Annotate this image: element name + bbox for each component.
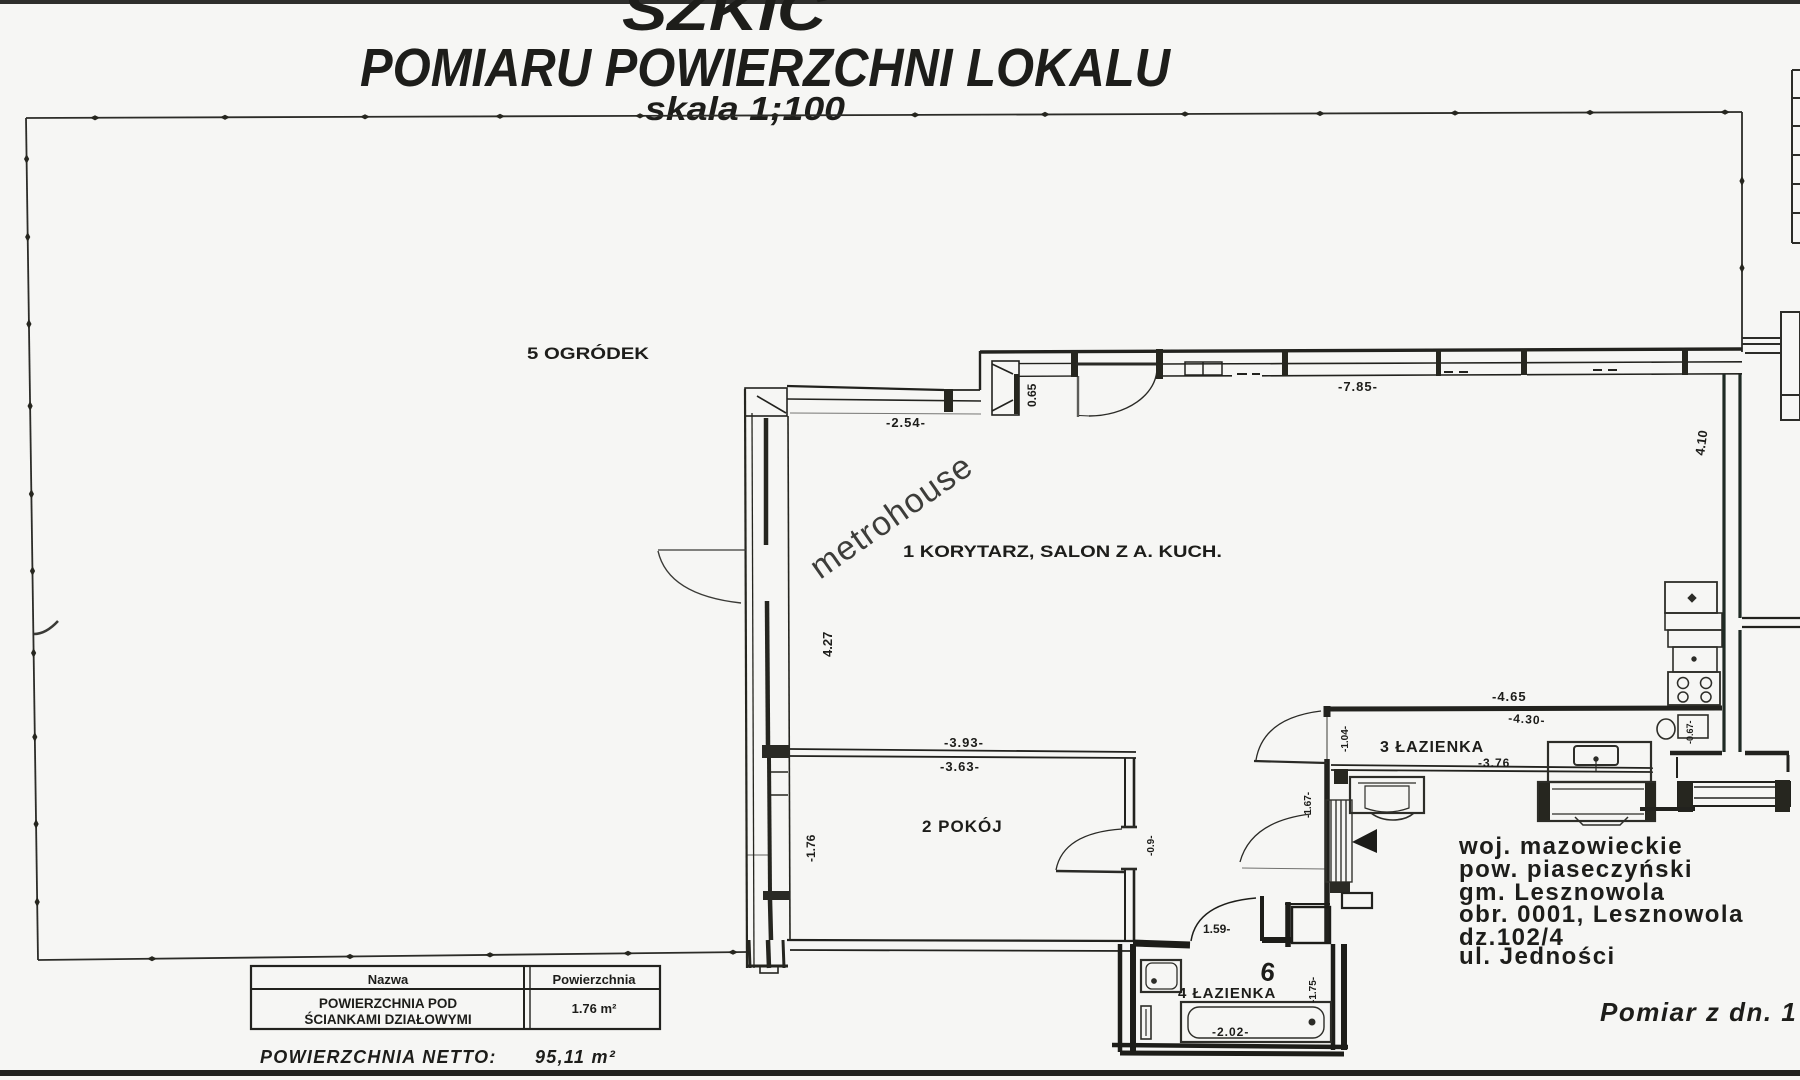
svg-text:-4.30-: -4.30- [1508, 711, 1546, 728]
svg-text:1.59-: 1.59- [1203, 922, 1230, 936]
svg-text:5 OGRÓDEK: 5 OGRÓDEK [527, 344, 650, 363]
svg-text:Pomiar z dn. 1: Pomiar z dn. 1 [1600, 997, 1797, 1027]
svg-text:-4.65: -4.65 [1492, 689, 1527, 704]
svg-text:SZKIC: SZKIC [622, 0, 827, 43]
svg-text:-0.67-: -0.67- [1685, 720, 1695, 744]
svg-text:skala 1;100: skala 1;100 [645, 90, 846, 127]
svg-text:4.27: 4.27 [820, 632, 835, 657]
svg-text:POWIERZCHNIA POD: POWIERZCHNIA POD [319, 996, 458, 1011]
svg-text:-3.93-: -3.93- [944, 735, 984, 750]
svg-text:-1.04-: -1.04- [1340, 726, 1351, 752]
svg-text:-2.54-: -2.54- [886, 415, 926, 430]
svg-text:3 ŁAZIENKA: 3 ŁAZIENKA [1380, 739, 1484, 756]
svg-text:-0.9-: -0.9- [1146, 835, 1157, 856]
svg-text:4 ŁAZIENKA: 4 ŁAZIENKA [1178, 985, 1276, 1002]
svg-text:0.65: 0.65 [1025, 383, 1039, 407]
svg-text:ul. Jedności: ul. Jedności [1459, 943, 1616, 970]
svg-text:-1.76: -1.76 [804, 834, 818, 862]
svg-text:2 POKÓJ: 2 POKÓJ [922, 817, 1003, 836]
svg-text:-3.63-: -3.63- [940, 759, 980, 774]
svg-text:-2.02-: -2.02- [1212, 1025, 1249, 1039]
svg-text:95,11 m²: 95,11 m² [535, 1047, 616, 1067]
svg-text:1 KORYTARZ, SALON Z A. KUCH.: 1 KORYTARZ, SALON Z A. KUCH. [903, 542, 1222, 561]
svg-text:1.76 m²: 1.76 m² [572, 1001, 617, 1016]
svg-text:-7.85-: -7.85- [1338, 379, 1378, 394]
svg-text:POMIARU POWIERZCHNI LOKALU: POMIARU POWIERZCHNI LOKALU [360, 38, 1172, 98]
svg-text:ŚCIANKAMI DZIAŁOWYMI: ŚCIANKAMI DZIAŁOWYMI [304, 1012, 471, 1027]
svg-text:Powierzchnia: Powierzchnia [552, 972, 636, 987]
svg-text:POWIERZCHNIA NETTO:: POWIERZCHNIA NETTO: [260, 1047, 497, 1067]
svg-text:-1.67-: -1.67- [1303, 792, 1314, 818]
svg-text:-1.75-: -1.75- [1308, 977, 1319, 1003]
svg-text:-3.76: -3.76 [1478, 756, 1510, 770]
svg-text:Nazwa: Nazwa [368, 972, 409, 987]
